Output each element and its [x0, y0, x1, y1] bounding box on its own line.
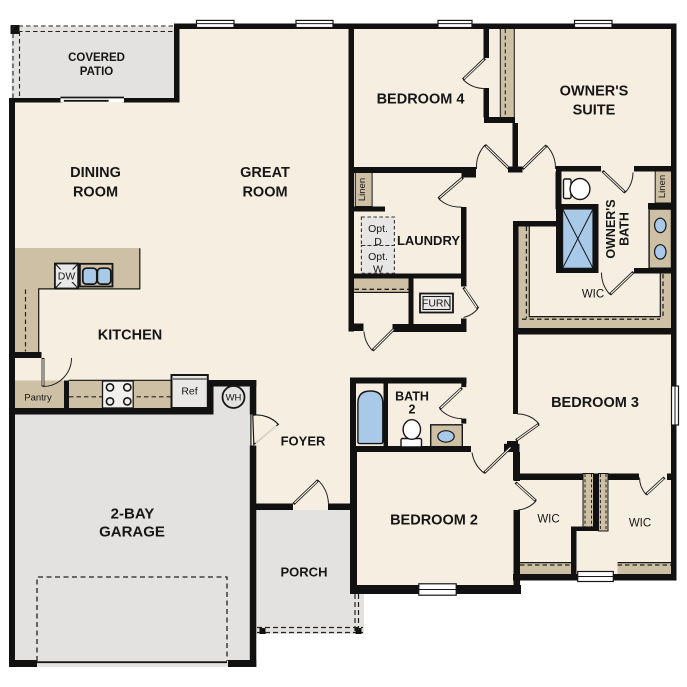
svg-text:FOYER: FOYER [281, 434, 326, 449]
svg-text:Linen: Linen [357, 178, 368, 201]
svg-text:BATH: BATH [395, 390, 429, 404]
svg-text:Opt.: Opt. [368, 251, 388, 263]
svg-text:Ref: Ref [181, 386, 197, 398]
svg-text:GREAT: GREAT [240, 165, 290, 181]
svg-text:W: W [373, 264, 383, 276]
svg-text:FURN: FURN [422, 298, 451, 310]
svg-text:D: D [374, 236, 382, 248]
svg-text:WH: WH [226, 393, 242, 404]
svg-text:DINING: DINING [70, 165, 121, 181]
svg-text:PORCH: PORCH [281, 565, 328, 580]
svg-text:KITCHEN: KITCHEN [98, 328, 162, 344]
svg-text:WIC: WIC [629, 518, 651, 530]
svg-text:Pantry: Pantry [24, 393, 52, 404]
svg-text:ROOM: ROOM [242, 185, 287, 201]
svg-text:PATIO: PATIO [80, 66, 113, 78]
svg-text:BEDROOM 2: BEDROOM 2 [390, 513, 478, 529]
svg-text:Linen: Linen [657, 175, 668, 198]
svg-text:DW: DW [58, 271, 76, 283]
svg-text:ROOM: ROOM [73, 185, 118, 201]
svg-text:Opt.: Opt. [368, 223, 388, 235]
svg-text:LAUNDRY: LAUNDRY [397, 233, 460, 248]
svg-text:2: 2 [409, 403, 416, 417]
svg-text:GARAGE: GARAGE [99, 524, 165, 541]
svg-text:BEDROOM 3: BEDROOM 3 [551, 395, 639, 411]
svg-text:OWNER'S: OWNER'S [560, 84, 629, 100]
svg-text:WIC: WIC [537, 514, 559, 526]
svg-text:COVERED: COVERED [68, 52, 125, 64]
svg-text:WIC: WIC [582, 289, 604, 301]
svg-text:SUITE: SUITE [573, 103, 616, 119]
svg-text:2-BAY: 2-BAY [111, 506, 155, 523]
svg-text:BEDROOM 4: BEDROOM 4 [377, 92, 465, 108]
